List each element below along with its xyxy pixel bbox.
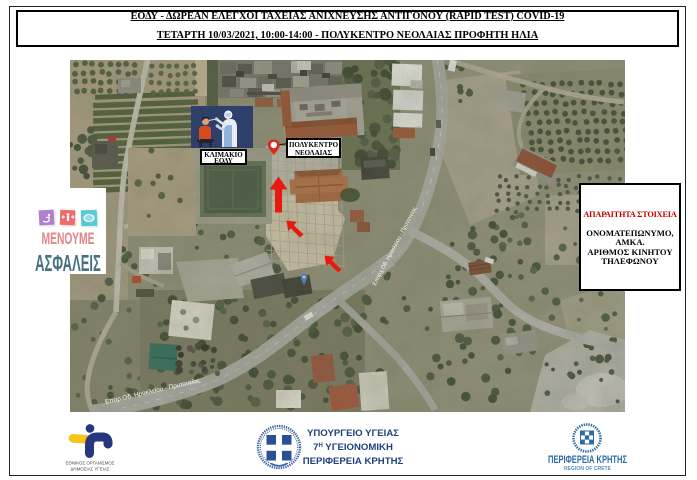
svg-text:ΠΕΡΙΦΕΡΕΙΑ ΚΡΗΤΗΣ: ΠΕΡΙΦΕΡΕΙΑ ΚΡΗΤΗΣ [303,456,404,467]
svg-text:ΥΠΟΥΡΓΕΙΟ ΥΓΕΙΑΣ: ΥΠΟΥΡΓΕΙΟ ΥΓΕΙΑΣ [307,428,399,439]
svg-text:REGION OF CRETE: REGION OF CRETE [564,466,611,472]
svg-text:7Η ΥΓΕΙΟΝΟΜΙΚΗ: 7Η ΥΓΕΙΟΝΟΜΙΚΗ [313,442,393,453]
svg-text:ΕΘΝΙΚΟΣ ΟΡΓΑΝΙΣΜΟΣ: ΕΘΝΙΚΟΣ ΟΡΓΑΝΙΣΜΟΣ [65,461,114,466]
svg-text:ΔΗΜΟΣΙΑΣ ΥΓΕΙΑΣ: ΔΗΜΟΣΙΑΣ ΥΓΕΙΑΣ [70,467,109,472]
svg-text:ΠΕΡΙΦΕΡΕΙΑ ΚΡΗΤΗΣ: ΠΕΡΙΦΕΡΕΙΑ ΚΡΗΤΗΣ [548,454,627,466]
